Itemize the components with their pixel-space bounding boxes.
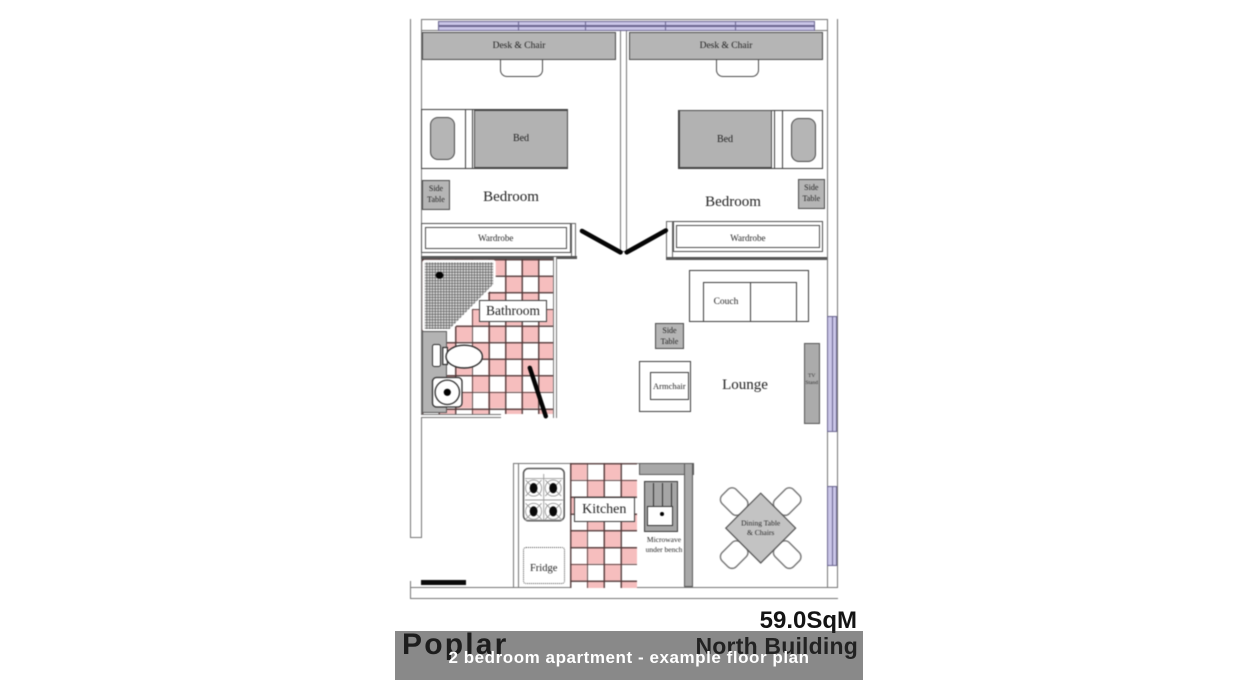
svg-text:Dining Table: Dining Table xyxy=(741,519,781,528)
svg-text:& Chairs: & Chairs xyxy=(747,528,774,537)
